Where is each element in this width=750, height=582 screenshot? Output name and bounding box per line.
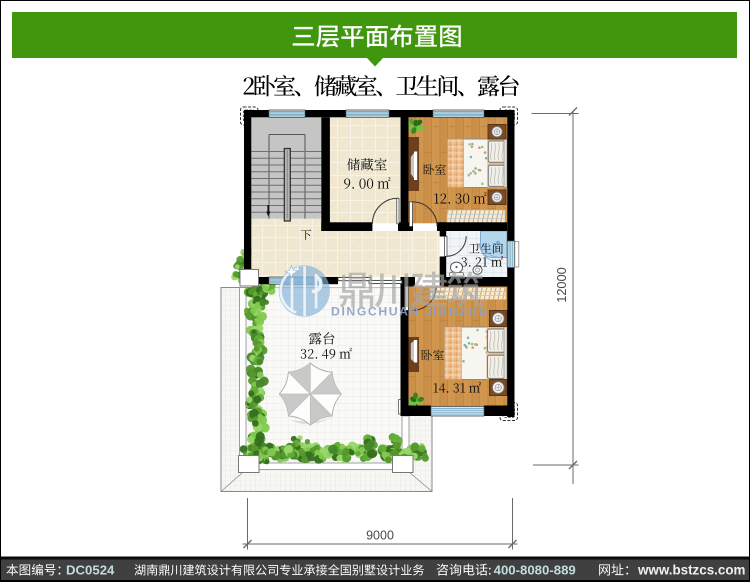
svg-text:DINGCHUAN JIANZHU: DINGCHUAN JIANZHU bbox=[331, 305, 489, 319]
svg-text:12000: 12000 bbox=[554, 267, 569, 303]
svg-text:DC0524: DC0524 bbox=[66, 563, 115, 578]
svg-text:400-8080-889: 400-8080-889 bbox=[494, 563, 576, 578]
svg-text:www.bstzcs.com: www.bstzcs.com bbox=[637, 563, 745, 578]
svg-text:9000: 9000 bbox=[366, 529, 394, 543]
